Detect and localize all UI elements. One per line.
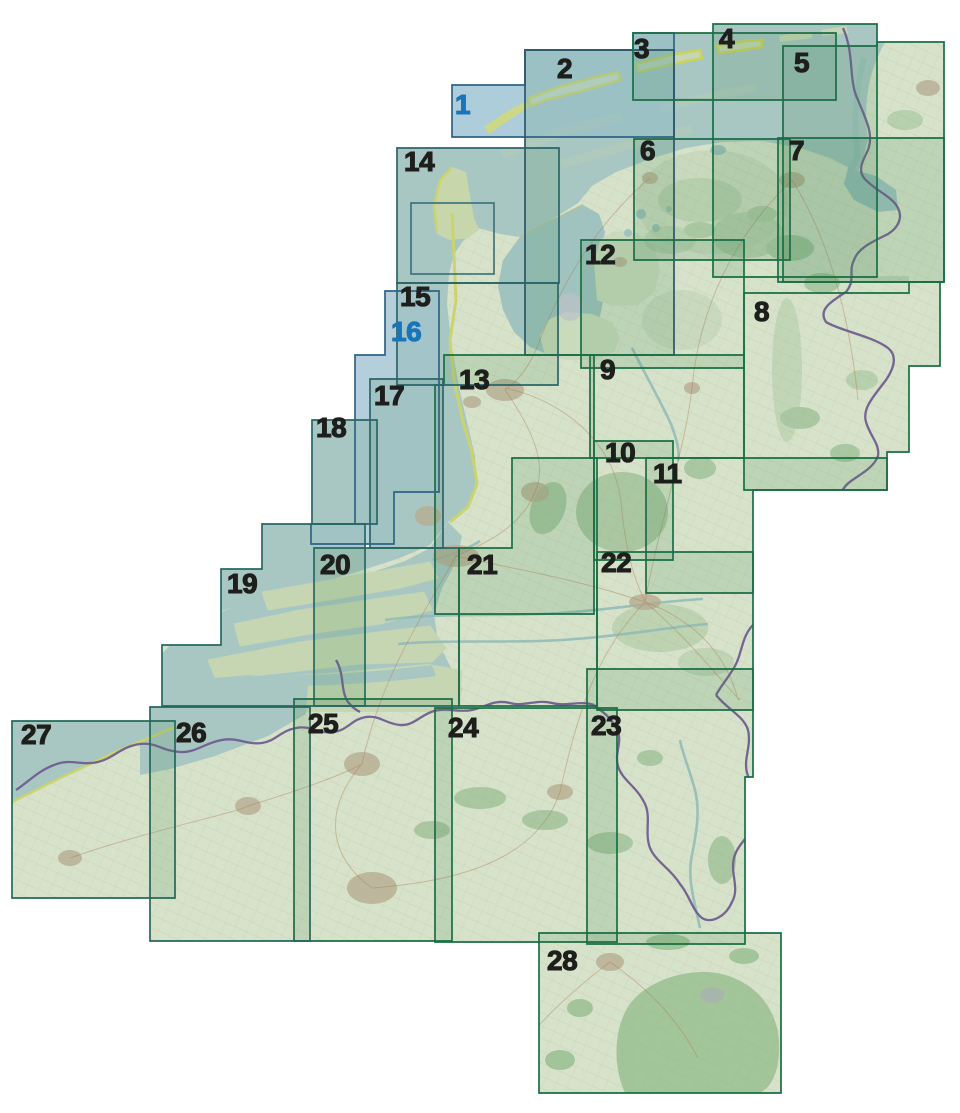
svg-text:14: 14 (404, 146, 435, 177)
svg-text:27: 27 (21, 719, 51, 750)
svg-text:9: 9 (600, 354, 615, 385)
svg-text:6: 6 (640, 135, 655, 166)
svg-text:18: 18 (316, 412, 346, 443)
svg-text:8: 8 (754, 296, 769, 327)
svg-text:16: 16 (391, 316, 421, 347)
svg-text:15: 15 (400, 281, 430, 312)
svg-text:28: 28 (547, 945, 577, 976)
svg-text:13: 13 (459, 364, 489, 395)
svg-text:26: 26 (176, 717, 206, 748)
svg-text:21: 21 (467, 549, 497, 580)
svg-text:5: 5 (794, 47, 809, 78)
svg-text:10: 10 (605, 437, 635, 468)
svg-text:3: 3 (634, 33, 649, 64)
svg-text:1: 1 (455, 89, 470, 120)
svg-text:17: 17 (374, 380, 404, 411)
svg-text:20: 20 (320, 549, 350, 580)
svg-text:24: 24 (448, 712, 479, 743)
svg-text:12: 12 (585, 239, 615, 270)
svg-text:19: 19 (227, 568, 257, 599)
svg-text:7: 7 (789, 135, 804, 166)
svg-text:22: 22 (601, 547, 631, 578)
svg-text:11: 11 (653, 458, 682, 489)
svg-text:4: 4 (719, 23, 735, 54)
svg-text:25: 25 (308, 708, 338, 739)
svg-text:23: 23 (591, 710, 621, 741)
svg-text:2: 2 (557, 53, 572, 84)
